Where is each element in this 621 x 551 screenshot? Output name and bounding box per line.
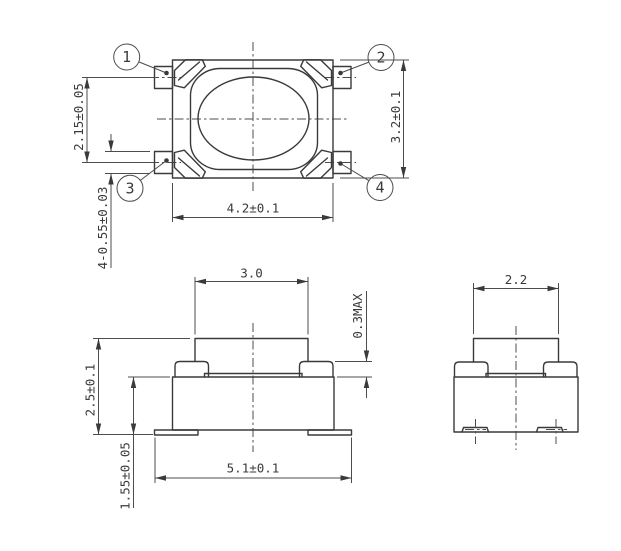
dim-total-height: 2.5±0.1 <box>83 339 191 435</box>
pin4-balloon: 4 <box>338 161 393 200</box>
dim-text-pin-pitch: 2.15±0.05 <box>71 83 86 151</box>
pin1-leader-line <box>139 62 167 73</box>
front-view: 3.0 0.3MAX 2.5±0.1 1.55±0.05 <box>83 266 373 510</box>
dim-text-body-height: 3.2±0.1 <box>388 91 403 144</box>
dim-lead-span: 5.1±0.1 <box>155 438 352 484</box>
side-right-bump <box>544 362 578 377</box>
front-body-outline <box>173 377 335 430</box>
dim-button-width: 3.0 <box>195 266 308 335</box>
dim-base-height: 1.55±0.05 <box>118 377 171 510</box>
front-right-foot <box>308 430 352 435</box>
drawing-canvas: 1 2 3 4 2.15±0.05 <box>0 0 621 551</box>
pin3-leader-dot <box>164 158 169 163</box>
dim-text-lead-span: 5.1±0.1 <box>227 461 280 476</box>
dim-pin-pitch: 2.15±0.05 <box>71 78 158 163</box>
pin2-leader-dot <box>338 71 343 76</box>
corner-tab-top-left <box>175 60 206 88</box>
dim-text-bump-protrusion: 0.3MAX <box>350 293 365 339</box>
pin1-leader-dot <box>164 71 169 76</box>
corner-tab-bottom-left <box>175 150 206 178</box>
side-view: 2.2 <box>454 272 578 450</box>
front-left-bump <box>175 362 209 378</box>
pin4-leader-dot <box>338 161 343 166</box>
dim-text-base-height: 1.55±0.05 <box>118 442 133 510</box>
dim-pin-width: 4-0.55±0.03 <box>95 134 150 269</box>
pin1-label: 1 <box>122 48 131 66</box>
pin1-balloon: 1 <box>114 44 169 75</box>
dim-bump-protrusion: 0.3MAX <box>335 291 372 398</box>
tact-switch-drawing: 1 2 3 4 2.15±0.05 <box>0 0 621 551</box>
pin4-label: 4 <box>375 179 384 197</box>
pin3-leader-line <box>140 161 166 181</box>
front-button-outline <box>195 339 308 362</box>
pin3-balloon: 3 <box>117 158 169 201</box>
pin2-label: 2 <box>376 49 385 67</box>
front-right-bump <box>300 362 334 378</box>
front-left-foot <box>155 430 199 435</box>
dim-text-button-width: 3.0 <box>240 266 263 281</box>
dim-text-button-depth: 2.2 <box>505 272 528 287</box>
top-view: 1 2 3 4 2.15±0.05 <box>71 42 409 269</box>
pin3-label: 3 <box>125 179 134 197</box>
pin2-leader-line <box>341 62 369 73</box>
dim-text-pin-width: 4-0.55±0.03 <box>95 187 110 270</box>
side-left-bump <box>455 362 489 377</box>
dim-text-total-height: 2.5±0.1 <box>83 364 98 417</box>
dim-button-depth: 2.2 <box>474 272 559 334</box>
dim-text-body-width: 4.2±0.1 <box>227 201 280 216</box>
